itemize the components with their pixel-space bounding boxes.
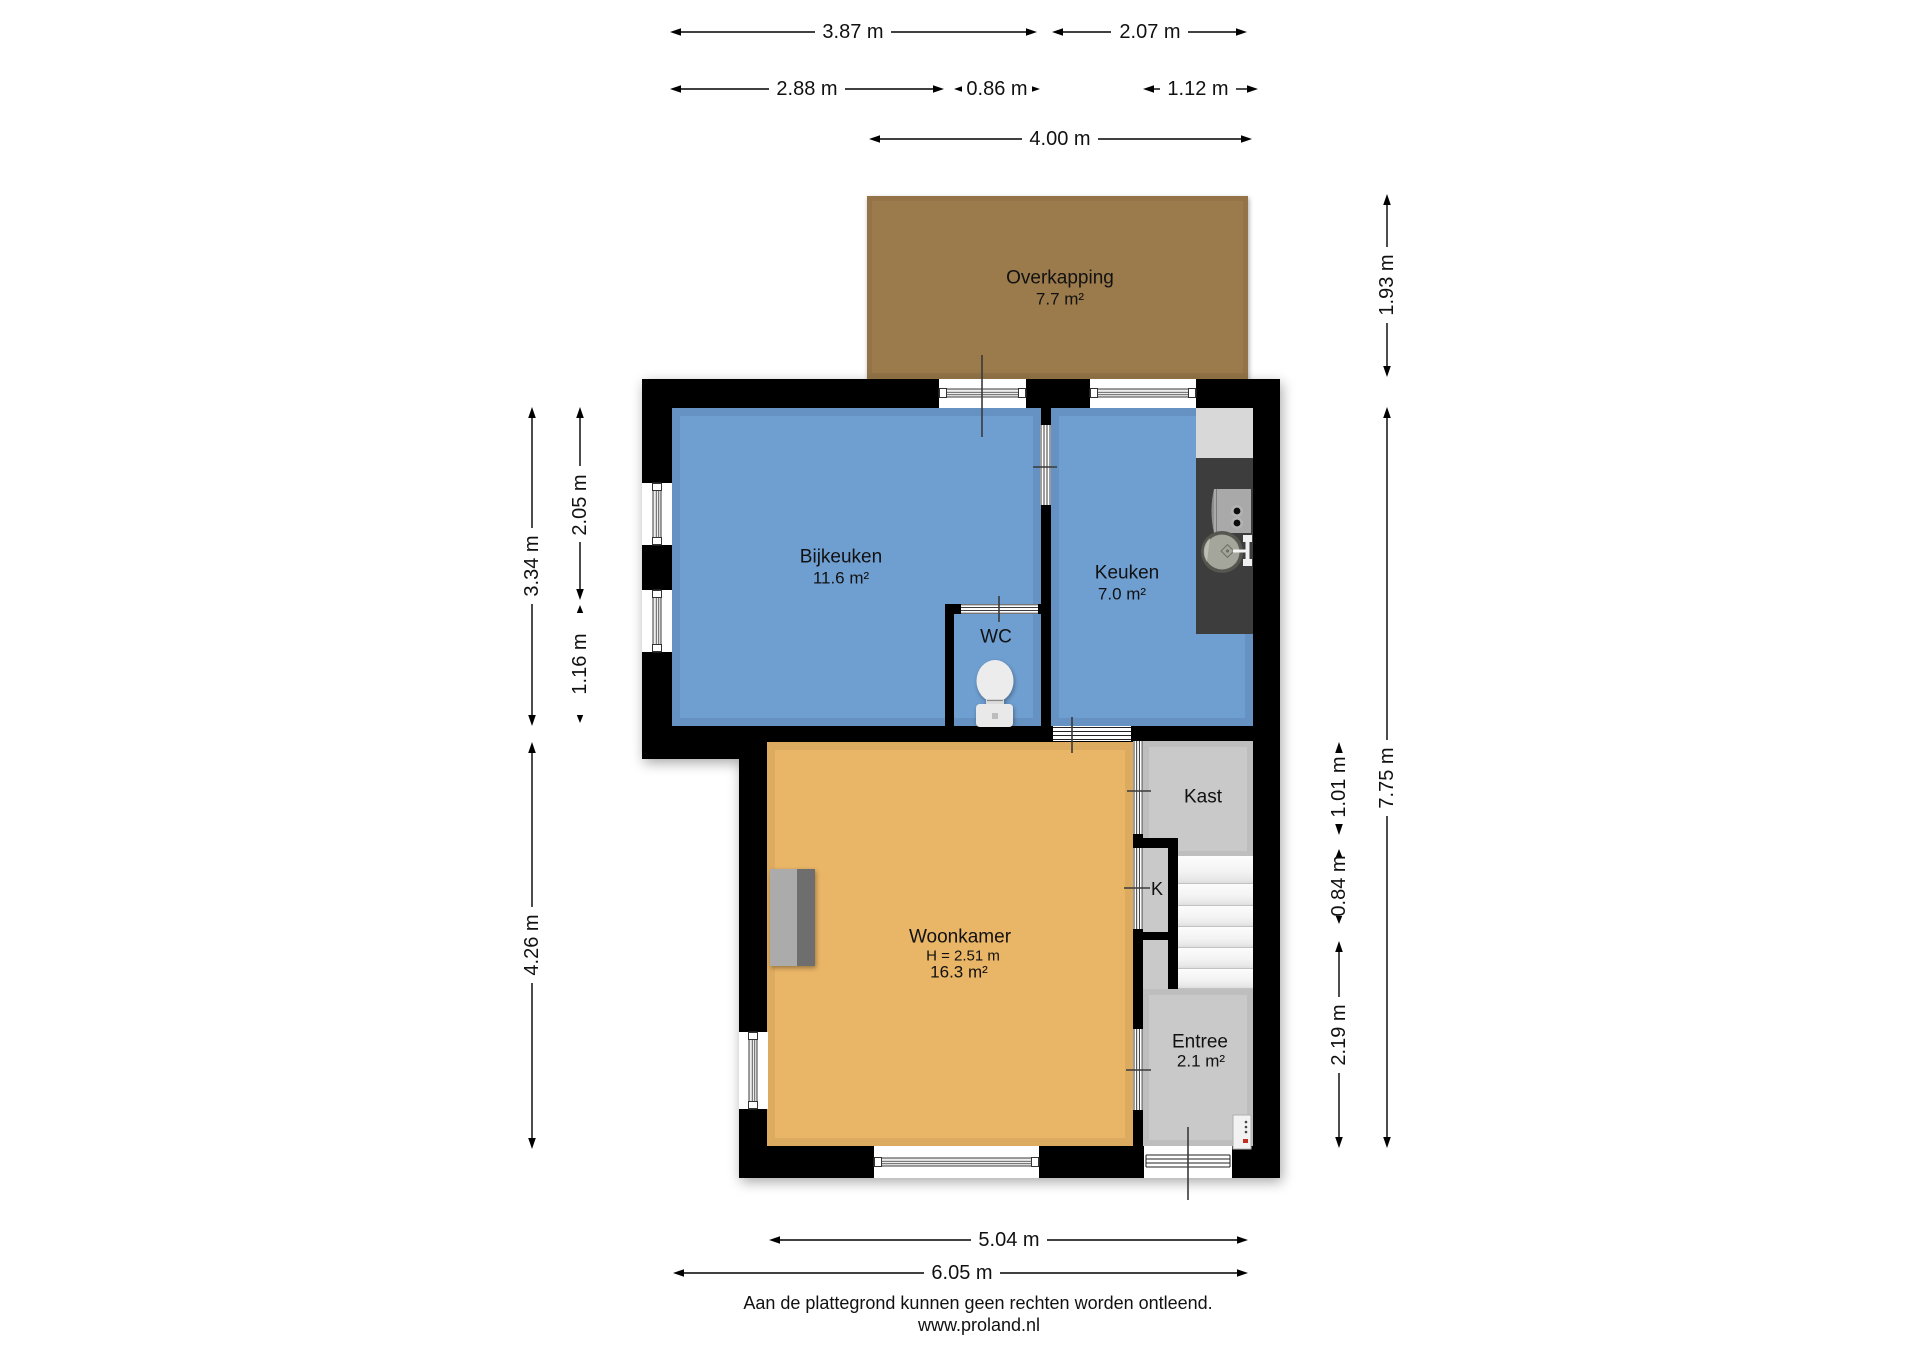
svg-text:Bijkeuken: Bijkeuken [800,547,882,568]
svg-text:4.26 m: 4.26 m [521,914,543,975]
svg-text:1.12 m: 1.12 m [1167,78,1228,100]
svg-text:3.87 m: 3.87 m [822,21,883,43]
svg-text:7.7 m²: 7.7 m² [1036,290,1085,309]
svg-text:0.84 m: 0.84 m [1328,855,1350,916]
svg-text:7.0 m²: 7.0 m² [1098,585,1147,604]
svg-text:4.00 m: 4.00 m [1029,128,1090,150]
svg-text:7.75 m: 7.75 m [1376,747,1398,808]
svg-text:www.proland.nl: www.proland.nl [917,1315,1040,1335]
svg-text:WC: WC [980,627,1012,648]
svg-text:2.19 m: 2.19 m [1328,1004,1350,1065]
svg-text:Keuken: Keuken [1095,563,1159,584]
svg-text:3.34 m: 3.34 m [521,535,543,596]
svg-text:0.86 m: 0.86 m [966,78,1027,100]
svg-text:2.07 m: 2.07 m [1119,21,1180,43]
svg-text:Aan de plattegrond kunnen geen: Aan de plattegrond kunnen geen rechten w… [743,1293,1212,1313]
svg-text:Overkapping: Overkapping [1006,268,1114,289]
svg-text:K: K [1151,879,1163,899]
svg-text:5.04 m: 5.04 m [978,1229,1039,1251]
svg-text:2.1 m²: 2.1 m² [1177,1052,1226,1071]
svg-text:2.05 m: 2.05 m [569,474,591,535]
svg-text:2.88 m: 2.88 m [776,78,837,100]
svg-text:Woonkamer: Woonkamer [909,927,1012,948]
svg-text:1.16 m: 1.16 m [569,633,591,694]
svg-text:Entree: Entree [1172,1032,1228,1053]
svg-text:16.3 m²: 16.3 m² [930,963,988,982]
svg-text:1.01 m: 1.01 m [1328,756,1350,817]
svg-text:1.93 m: 1.93 m [1376,254,1398,315]
svg-text:6.05 m: 6.05 m [931,1262,992,1284]
svg-text:Kast: Kast [1184,787,1223,808]
svg-text:11.6 m²: 11.6 m² [813,569,870,588]
